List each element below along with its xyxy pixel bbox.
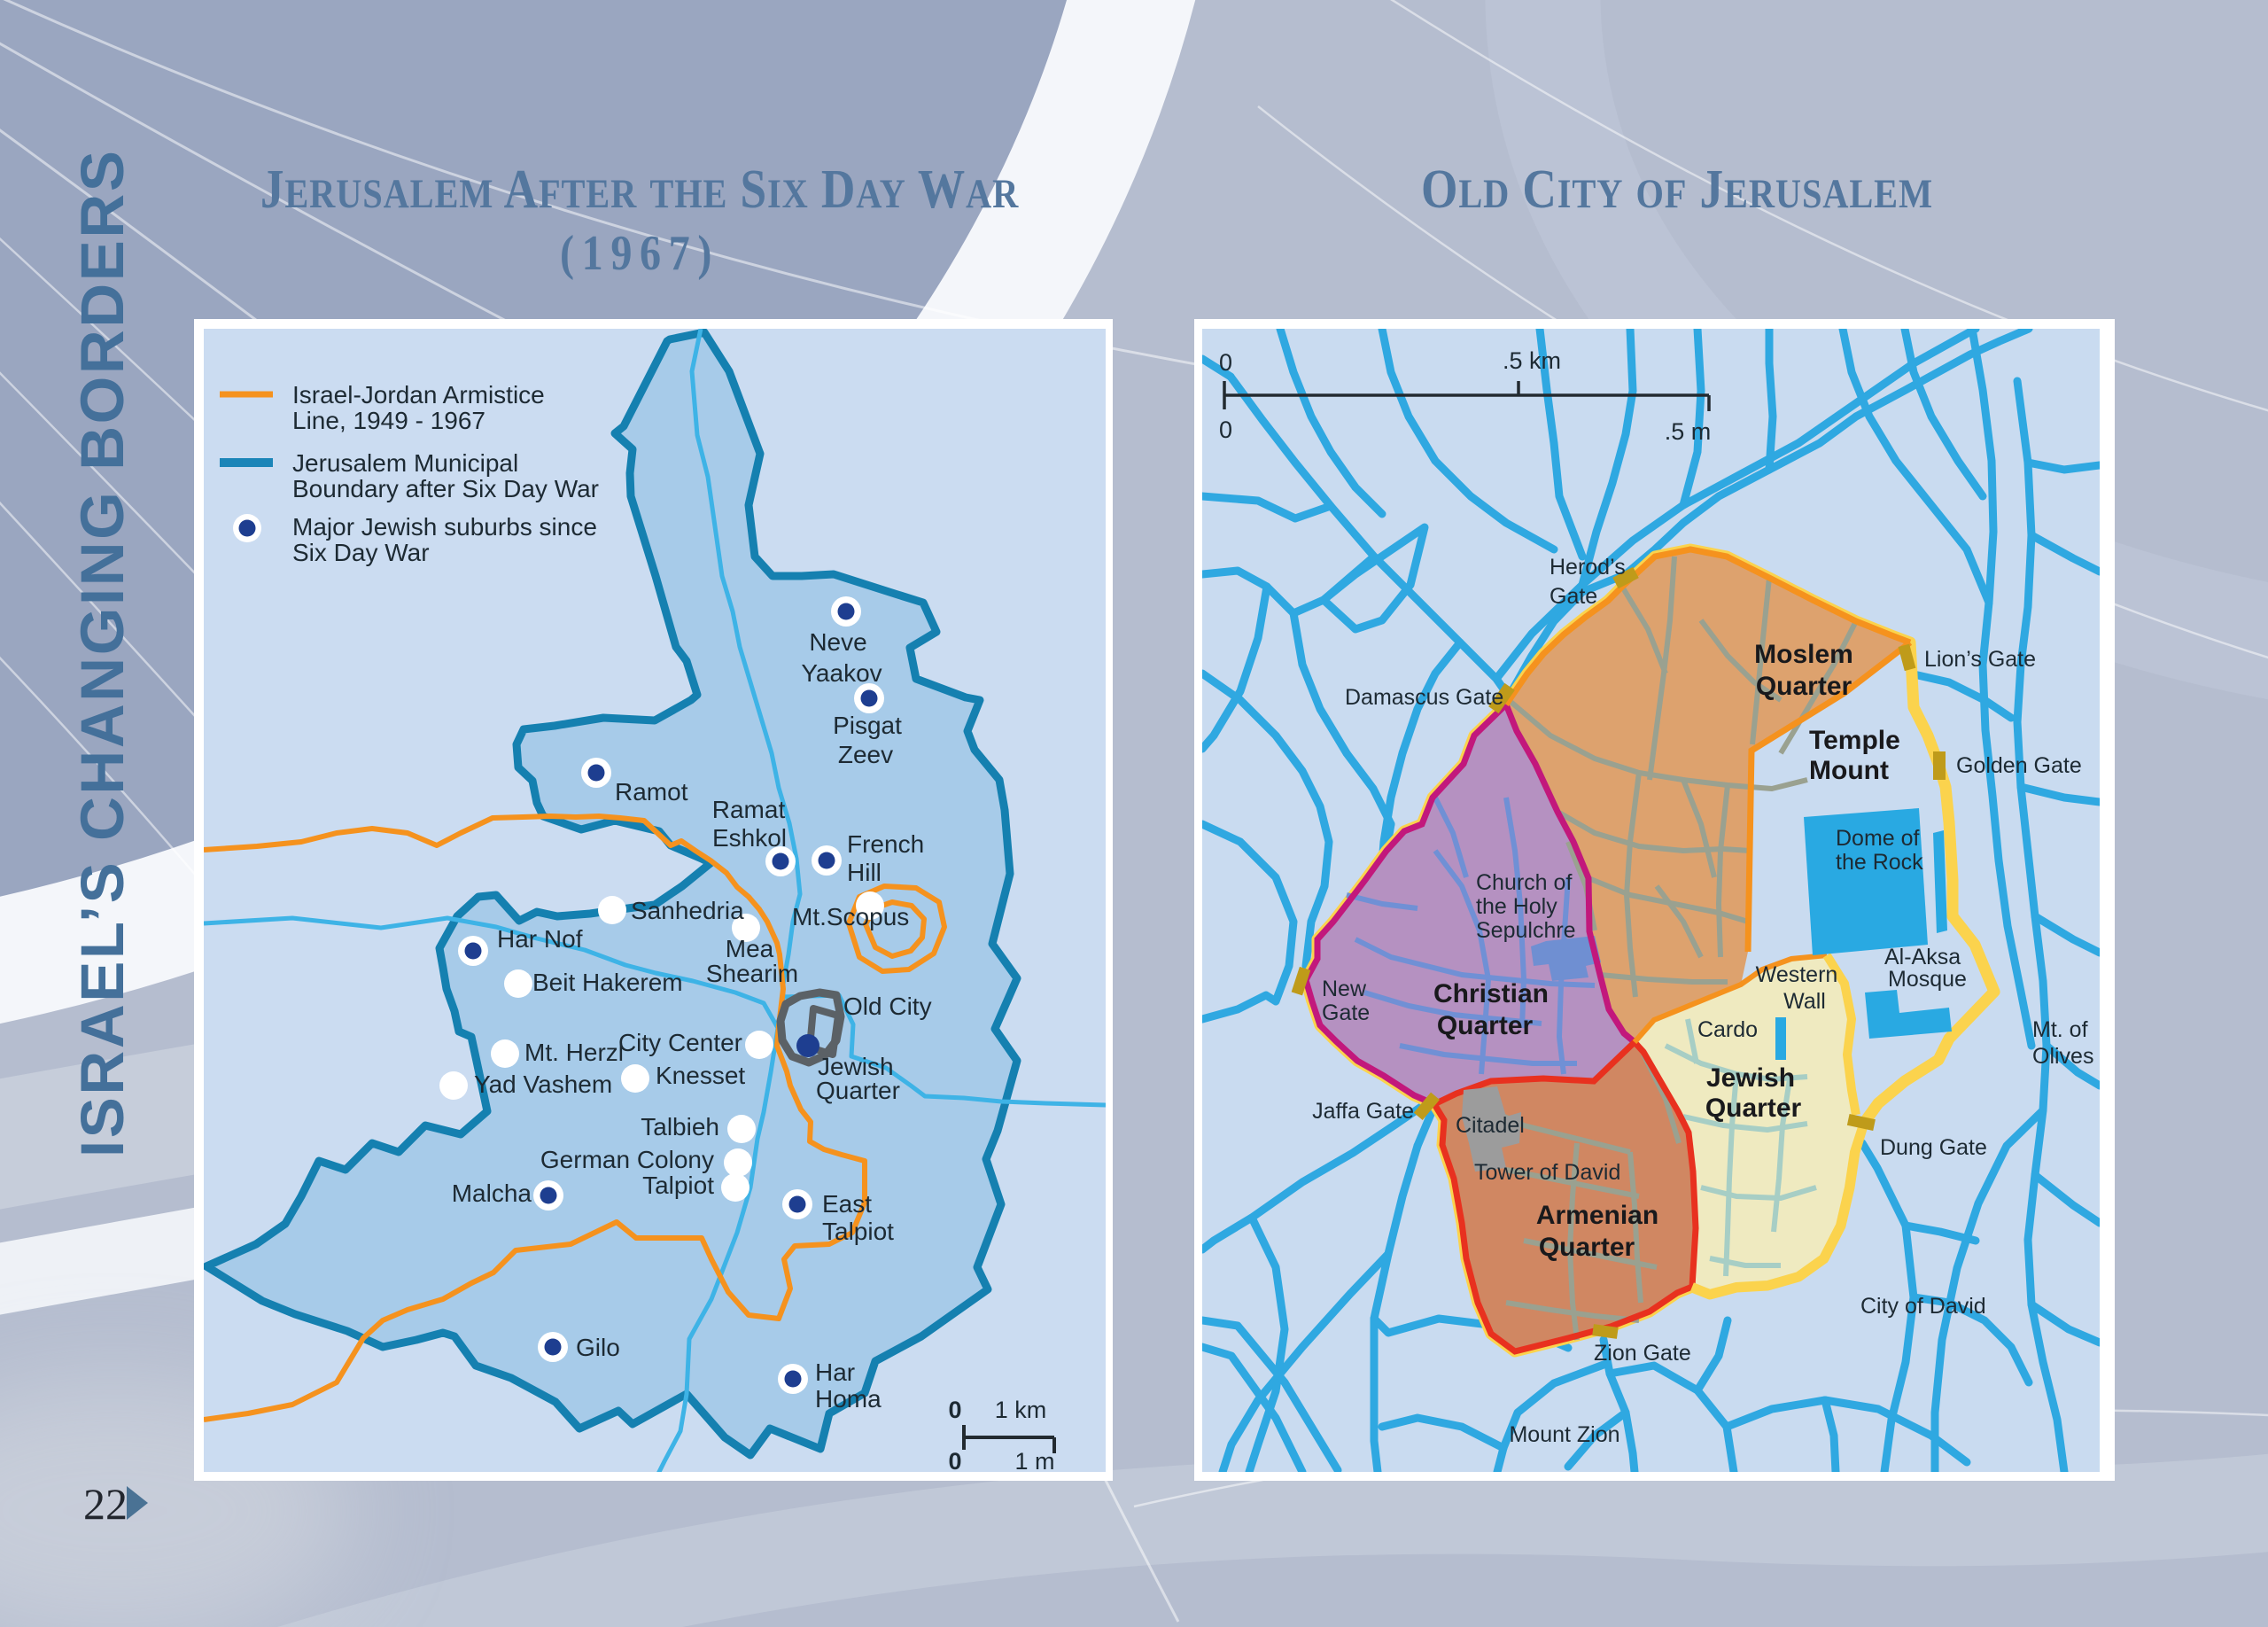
svg-text:Pisgat: Pisgat bbox=[833, 712, 902, 739]
svg-text:Ramat: Ramat bbox=[712, 796, 786, 823]
svg-text:Hill: Hill bbox=[847, 859, 882, 886]
svg-text:Mt.Scopus: Mt.Scopus bbox=[792, 903, 909, 930]
svg-text:Jaffa Gate: Jaffa Gate bbox=[1312, 1099, 1414, 1124]
svg-text:0: 0 bbox=[948, 1397, 961, 1423]
svg-text:Boundary after Six Day War: Boundary after Six Day War bbox=[292, 475, 599, 502]
svg-text:Mea: Mea bbox=[726, 935, 774, 962]
svg-text:Six Day War: Six Day War bbox=[292, 539, 430, 566]
svg-text:Dung Gate: Dung Gate bbox=[1880, 1135, 1987, 1160]
svg-text:Quarter: Quarter bbox=[1539, 1233, 1635, 1262]
svg-text:Tower of David: Tower of David bbox=[1474, 1160, 1620, 1185]
svg-text:Lion’s Gate: Lion’s Gate bbox=[1924, 647, 2036, 672]
svg-text:Yad Vashem: Yad Vashem bbox=[474, 1070, 612, 1098]
svg-text:City Center: City Center bbox=[618, 1029, 742, 1056]
svg-text:City of David: City of David bbox=[1860, 1294, 1986, 1319]
svg-text:Knesset: Knesset bbox=[656, 1062, 745, 1089]
svg-text:Moslem: Moslem bbox=[1754, 640, 1853, 669]
svg-text:Gate: Gate bbox=[1322, 1000, 1370, 1025]
svg-text:Citadel: Citadel bbox=[1456, 1113, 1525, 1138]
svg-text:New: New bbox=[1322, 977, 1367, 1001]
svg-text:Zion Gate: Zion Gate bbox=[1594, 1341, 1691, 1366]
svg-text:Jewish: Jewish bbox=[1706, 1063, 1795, 1093]
svg-text:Beit Hakerem: Beit Hakerem bbox=[532, 969, 683, 996]
svg-text:Cardo: Cardo bbox=[1697, 1017, 1758, 1042]
svg-text:1 km: 1 km bbox=[995, 1397, 1047, 1423]
svg-text:German Colony: German Colony bbox=[540, 1146, 714, 1173]
svg-text:Church of: Church of bbox=[1476, 870, 1572, 895]
svg-text:Armenian: Armenian bbox=[1536, 1201, 1658, 1230]
svg-text:Israel-Jordan Armistice: Israel-Jordan Armistice bbox=[292, 381, 545, 409]
svg-text:Sanhedria: Sanhedria bbox=[631, 897, 744, 924]
svg-text:Gate: Gate bbox=[1550, 584, 1597, 609]
svg-text:0: 0 bbox=[948, 1448, 961, 1475]
svg-text:22: 22 bbox=[83, 1479, 128, 1529]
svg-text:0: 0 bbox=[1219, 416, 1232, 443]
svg-text:Christian: Christian bbox=[1433, 979, 1549, 1008]
svg-text:Zeev: Zeev bbox=[838, 741, 893, 768]
svg-text:.5 m: .5 m bbox=[1665, 418, 1712, 445]
svg-text:Jerusalem Municipal: Jerusalem Municipal bbox=[292, 449, 518, 477]
svg-text:Ramot: Ramot bbox=[615, 778, 688, 806]
svg-text:Shearim: Shearim bbox=[706, 960, 798, 987]
svg-text:Sepulchre: Sepulchre bbox=[1476, 918, 1576, 943]
svg-text:0: 0 bbox=[1219, 349, 1232, 376]
svg-text:French: French bbox=[847, 830, 924, 858]
svg-text:Eshkol: Eshkol bbox=[712, 824, 787, 852]
svg-text:Mount: Mount bbox=[1809, 756, 1889, 785]
svg-text:Yaakov: Yaakov bbox=[801, 659, 882, 687]
svg-text:Al-Aksa: Al-Aksa bbox=[1884, 945, 1961, 969]
svg-text:Neve: Neve bbox=[809, 628, 866, 656]
svg-text:Har: Har bbox=[815, 1358, 855, 1386]
svg-text:Har Nof: Har Nof bbox=[497, 925, 583, 953]
svg-text:Talpiot: Talpiot bbox=[822, 1218, 894, 1245]
svg-text:Quarter: Quarter bbox=[816, 1077, 900, 1104]
svg-text:Olives: Olives bbox=[2032, 1044, 2093, 1069]
svg-text:Mosque: Mosque bbox=[1888, 967, 1967, 992]
svg-text:Talpiot: Talpiot bbox=[642, 1172, 714, 1199]
svg-text:Gilo: Gilo bbox=[576, 1334, 620, 1361]
svg-text:1 m: 1 m bbox=[1014, 1448, 1054, 1475]
svg-text:Temple: Temple bbox=[1809, 726, 1900, 755]
svg-text:Western: Western bbox=[1756, 962, 1838, 987]
svg-text:Mt. Herzl: Mt. Herzl bbox=[524, 1039, 624, 1066]
svg-text:Golden Gate: Golden Gate bbox=[1956, 753, 2082, 778]
svg-text:Talbieh: Talbieh bbox=[641, 1113, 719, 1140]
svg-text:Malcha: Malcha bbox=[452, 1179, 532, 1207]
svg-text:the Holy: the Holy bbox=[1476, 894, 1557, 919]
svg-text:the Rock: the Rock bbox=[1836, 850, 1923, 875]
svg-text:Herod’s: Herod’s bbox=[1550, 555, 1626, 580]
svg-text:Mt. of: Mt. of bbox=[2032, 1017, 2088, 1042]
svg-text:.5 km: .5 km bbox=[1503, 347, 1561, 374]
svg-text:Mount Zion: Mount Zion bbox=[1509, 1422, 1619, 1447]
svg-text:Major Jewish suburbs since: Major Jewish suburbs since bbox=[292, 513, 597, 541]
svg-text:Homa: Homa bbox=[815, 1385, 882, 1413]
svg-text:Wall: Wall bbox=[1783, 989, 1826, 1014]
svg-text:Quarter: Quarter bbox=[1705, 1094, 1802, 1123]
svg-text:Line, 1949 - 1967: Line, 1949 - 1967 bbox=[292, 407, 485, 434]
svg-text:Damascus Gate: Damascus Gate bbox=[1345, 685, 1503, 710]
svg-text:Quarter: Quarter bbox=[1756, 672, 1852, 701]
svg-text:Quarter: Quarter bbox=[1437, 1011, 1534, 1040]
svg-text:Dome of: Dome of bbox=[1836, 826, 1920, 851]
svg-text:Old City: Old City bbox=[843, 993, 932, 1020]
svg-text:East: East bbox=[822, 1190, 872, 1218]
